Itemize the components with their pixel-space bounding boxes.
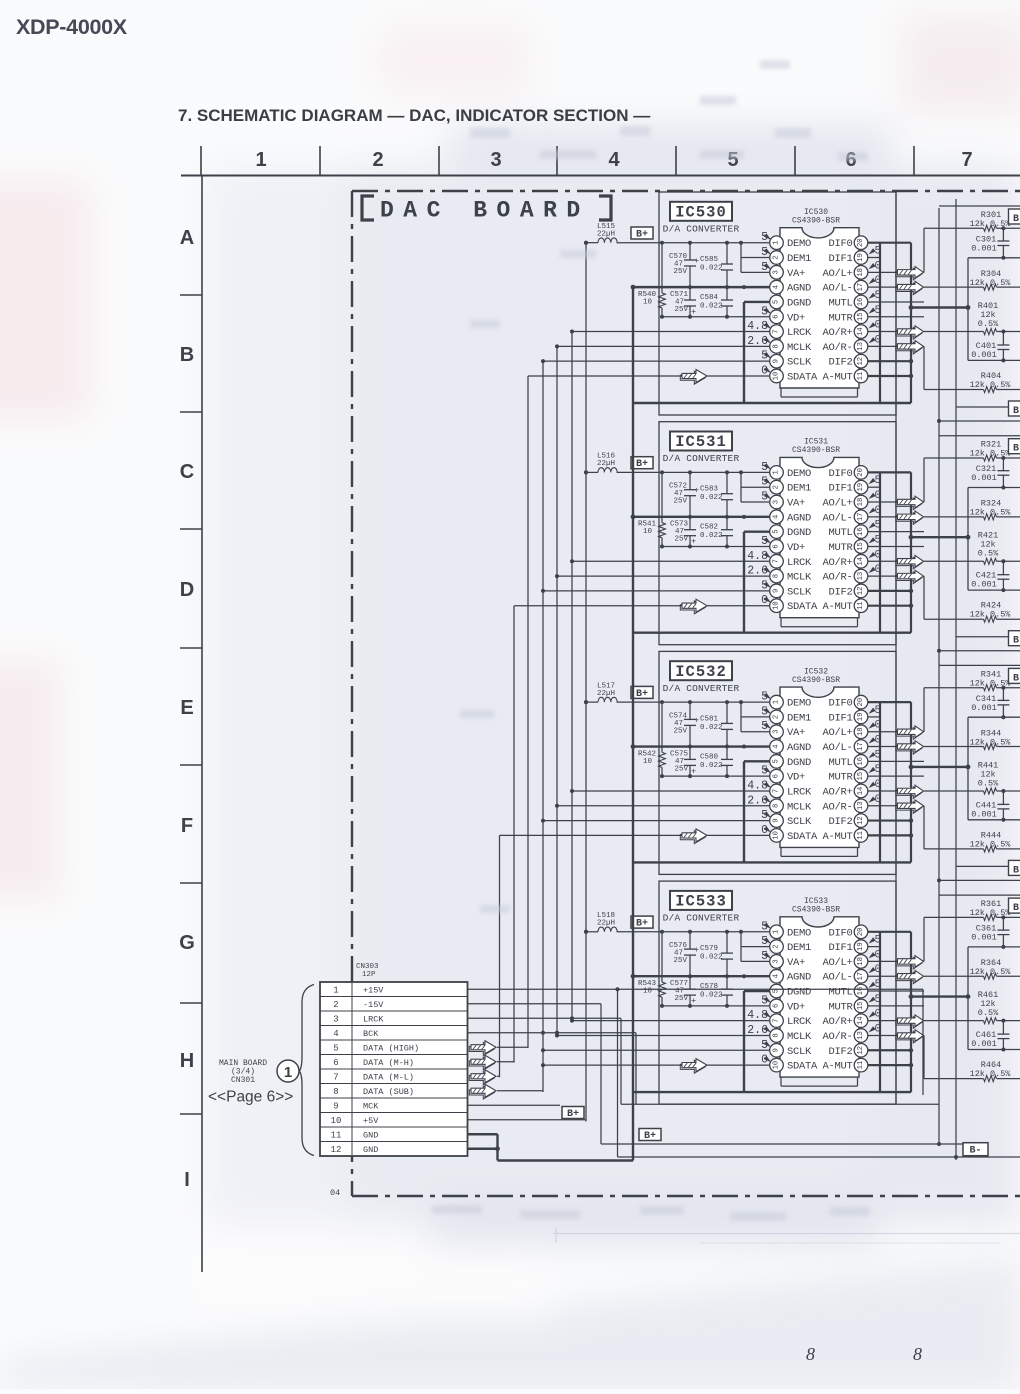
svg-text:AO/L+: AO/L+	[822, 498, 852, 510]
svg-text:MUTR: MUTR	[828, 1001, 853, 1013]
svg-text:AO/L-: AO/L-	[822, 742, 852, 754]
svg-text:8: 8	[773, 804, 781, 808]
svg-text:B+: B+	[636, 459, 648, 470]
svg-text:B: B	[1013, 636, 1019, 647]
svg-text:VD+: VD+	[787, 312, 805, 324]
svg-text:SCLK: SCLK	[787, 816, 812, 828]
svg-text:H: H	[180, 1050, 194, 1072]
svg-text:12P: 12P	[362, 971, 376, 979]
svg-text:<<Page 6>>: <<Page 6>>	[208, 1089, 293, 1106]
svg-text:0.022: 0.022	[700, 992, 723, 1000]
svg-text:SCLK: SCLK	[787, 1046, 812, 1058]
svg-text:6: 6	[773, 774, 781, 778]
svg-text:MCLK: MCLK	[787, 1031, 812, 1043]
svg-text:22µH: 22µH	[597, 920, 615, 928]
svg-text:6: 6	[773, 315, 781, 319]
svg-text:LRCK: LRCK	[787, 786, 812, 798]
svg-text:AO/R+: AO/R+	[822, 327, 852, 339]
svg-text:AGND: AGND	[787, 512, 811, 524]
svg-text:A-MUT: A-MUT	[822, 1061, 852, 1073]
svg-text:3: 3	[773, 730, 781, 734]
svg-text:5: 5	[333, 1043, 338, 1053]
svg-text:2: 2	[372, 149, 383, 171]
svg-text:4: 4	[333, 1029, 338, 1039]
svg-text:25V: 25V	[674, 306, 688, 314]
svg-text:14: 14	[857, 787, 865, 796]
svg-text:1: 1	[773, 470, 781, 474]
svg-text:10: 10	[773, 831, 781, 840]
svg-text:AO/L-: AO/L-	[822, 512, 852, 524]
svg-text:0.5%: 0.5%	[978, 778, 999, 788]
svg-text:7: 7	[773, 1018, 781, 1022]
svg-text:DIF1: DIF1	[828, 942, 852, 954]
svg-text:AO/L+: AO/L+	[822, 268, 852, 280]
svg-text:DIF1: DIF1	[828, 483, 852, 495]
svg-text:VA+: VA+	[787, 957, 805, 969]
svg-text:14: 14	[857, 327, 865, 336]
svg-text:CN303: CN303	[356, 963, 379, 971]
svg-text:AO/R-: AO/R-	[822, 801, 852, 813]
svg-text:14: 14	[857, 557, 865, 566]
svg-text:0.001: 0.001	[971, 703, 997, 713]
svg-text:0.022: 0.022	[700, 762, 723, 770]
svg-text:B+: B+	[636, 919, 648, 930]
svg-text:0.001: 0.001	[971, 1039, 997, 1049]
svg-text:DGND: DGND	[787, 757, 811, 769]
svg-text:B-: B-	[969, 1146, 981, 1157]
svg-text:D/A CONVERTER: D/A CONVERTER	[663, 913, 740, 924]
svg-text:25V: 25V	[674, 765, 688, 773]
svg-text:AO/R-: AO/R-	[822, 342, 852, 354]
svg-text:4: 4	[773, 974, 781, 978]
svg-text:C580: C580	[700, 753, 719, 761]
svg-text:MUTR: MUTR	[828, 312, 853, 324]
svg-text:3: 3	[773, 959, 781, 963]
svg-text:DATA (SUB): DATA (SUB)	[363, 1087, 414, 1097]
svg-text:1: 1	[773, 241, 781, 245]
svg-text:GND: GND	[363, 1145, 378, 1155]
svg-text:F: F	[181, 815, 193, 837]
svg-text:MUTL: MUTL	[828, 757, 852, 769]
svg-text:15: 15	[857, 1002, 865, 1011]
svg-text:1: 1	[773, 700, 781, 704]
svg-text:A-MUT: A-MUT	[822, 601, 852, 613]
svg-text:12: 12	[857, 357, 865, 366]
svg-text:DEMO: DEMO	[787, 468, 811, 480]
svg-text:3: 3	[333, 1014, 338, 1024]
svg-text:2: 2	[773, 944, 781, 948]
svg-text:+: +	[691, 307, 696, 317]
svg-text:DIF1: DIF1	[828, 253, 852, 265]
svg-text:15: 15	[857, 772, 865, 781]
svg-text:3: 3	[773, 270, 781, 274]
svg-text:15: 15	[857, 312, 865, 321]
svg-text:14: 14	[857, 1016, 865, 1025]
svg-text:9: 9	[773, 359, 781, 363]
svg-text:25V: 25V	[673, 727, 687, 735]
svg-text:DEM1: DEM1	[787, 942, 811, 954]
svg-text:DATA (M-H): DATA (M-H)	[363, 1058, 414, 1068]
svg-text:2: 2	[333, 1000, 338, 1010]
svg-text:17: 17	[857, 283, 865, 292]
svg-text:8: 8	[913, 1344, 922, 1364]
svg-text:CS4390-BSR: CS4390-BSR	[792, 446, 840, 455]
svg-text:25V: 25V	[673, 498, 687, 506]
svg-text:10: 10	[643, 528, 653, 536]
svg-text:11: 11	[331, 1130, 342, 1140]
svg-text:9: 9	[773, 1048, 781, 1052]
svg-text:GND: GND	[363, 1130, 378, 1140]
svg-text:0.022: 0.022	[700, 303, 723, 311]
svg-text:19: 19	[857, 483, 865, 492]
svg-text:13: 13	[857, 572, 865, 581]
svg-text:DEM1: DEM1	[787, 483, 811, 495]
svg-text:LRCK: LRCK	[787, 1016, 812, 1028]
svg-text:AGND: AGND	[787, 972, 811, 984]
svg-text:10: 10	[331, 1116, 342, 1126]
svg-text:7: 7	[773, 559, 781, 563]
svg-text:MCK: MCK	[363, 1101, 379, 1111]
svg-text:DIF2: DIF2	[828, 816, 852, 828]
svg-text:C582: C582	[700, 524, 718, 532]
svg-text:18: 18	[857, 957, 865, 966]
svg-text:1: 1	[333, 985, 338, 995]
svg-text:17: 17	[857, 972, 865, 981]
svg-text:MUTR: MUTR	[828, 542, 853, 554]
svg-text:MCLK: MCLK	[787, 342, 812, 354]
svg-text:SCLK: SCLK	[787, 357, 812, 369]
svg-text:17: 17	[857, 513, 865, 522]
svg-text:18: 18	[857, 498, 865, 507]
svg-text:VA+: VA+	[787, 268, 805, 280]
svg-text:19: 19	[857, 942, 865, 951]
svg-text:4: 4	[773, 285, 781, 289]
svg-text:DIF0: DIF0	[828, 927, 852, 939]
svg-text:16: 16	[857, 987, 865, 996]
svg-text:C584: C584	[700, 294, 719, 302]
svg-text:18: 18	[857, 268, 865, 277]
svg-text:19: 19	[857, 253, 865, 262]
svg-text:DEMO: DEMO	[787, 927, 811, 939]
svg-text:+: +	[694, 256, 699, 266]
svg-text:SDATA: SDATA	[787, 371, 818, 383]
svg-text:DIF2: DIF2	[828, 1046, 852, 1058]
svg-text:SDATA: SDATA	[787, 601, 818, 613]
svg-text:B: B	[1013, 673, 1019, 684]
svg-text:0.022: 0.022	[700, 532, 723, 540]
svg-text:MUTL: MUTL	[828, 297, 852, 309]
svg-text:BCK: BCK	[363, 1029, 379, 1039]
svg-text:20: 20	[857, 238, 865, 247]
svg-text:4: 4	[773, 744, 781, 748]
svg-text:25V: 25V	[674, 995, 688, 1003]
svg-text:6: 6	[773, 1004, 781, 1008]
svg-text:11: 11	[857, 601, 865, 610]
svg-text:B+: B+	[644, 1131, 656, 1142]
svg-text:IC530: IC530	[675, 204, 727, 222]
svg-text:7: 7	[333, 1072, 338, 1082]
svg-text:DEMO: DEMO	[787, 238, 811, 250]
svg-text:DEM1: DEM1	[787, 712, 811, 724]
svg-text:SDATA: SDATA	[787, 1061, 818, 1073]
svg-text:25V: 25V	[674, 536, 688, 544]
svg-text:C585: C585	[700, 256, 719, 264]
svg-text:7: 7	[961, 149, 972, 171]
svg-text:XDP-4000X: XDP-4000X	[16, 15, 128, 39]
svg-text:4: 4	[773, 515, 781, 519]
svg-text:22µH: 22µH	[597, 460, 615, 468]
svg-text:0.001: 0.001	[971, 473, 997, 483]
svg-text:12: 12	[857, 587, 865, 596]
svg-text:DGND: DGND	[787, 527, 811, 539]
svg-text:2: 2	[773, 715, 781, 719]
svg-text:2: 2	[773, 255, 781, 259]
svg-text:+5V: +5V	[363, 1116, 379, 1126]
svg-text:7. SCHEMATIC DIAGRAM — DAC, IN: 7. SCHEMATIC DIAGRAM — DAC, INDICATOR SE…	[178, 106, 650, 125]
svg-text:8: 8	[773, 574, 781, 578]
svg-text:0.001: 0.001	[971, 244, 997, 254]
svg-text:0.022: 0.022	[700, 494, 723, 502]
svg-text:10: 10	[773, 1061, 781, 1070]
svg-text:12: 12	[331, 1145, 342, 1155]
svg-text:20: 20	[857, 698, 865, 707]
svg-text:B+: B+	[636, 689, 648, 700]
svg-text:7: 7	[773, 789, 781, 793]
svg-text:AGND: AGND	[787, 283, 811, 295]
svg-text:11: 11	[857, 831, 865, 840]
svg-text:20: 20	[857, 468, 865, 477]
svg-text:C579: C579	[700, 945, 718, 953]
svg-text:9: 9	[773, 589, 781, 593]
svg-text:MCLK: MCLK	[787, 801, 812, 813]
svg-text:CN301: CN301	[231, 1076, 255, 1085]
svg-text:0.022: 0.022	[700, 265, 723, 273]
svg-text:B: B	[1013, 406, 1019, 417]
svg-text:11: 11	[857, 1061, 865, 1070]
svg-text:8: 8	[333, 1087, 338, 1097]
svg-text:DAC BOARD: DAC BOARD	[380, 198, 590, 224]
svg-text:10: 10	[773, 601, 781, 610]
svg-text:0.001: 0.001	[971, 933, 997, 943]
svg-text:E: E	[180, 697, 193, 719]
svg-text:D: D	[180, 579, 194, 601]
svg-text:G: G	[179, 932, 195, 954]
svg-text:AO/R+: AO/R+	[822, 786, 852, 798]
svg-text:DIF0: DIF0	[828, 238, 852, 250]
svg-text:CS4390-BSR: CS4390-BSR	[792, 217, 840, 226]
svg-text:22µH: 22µH	[597, 231, 615, 239]
svg-text:DEM1: DEM1	[787, 253, 811, 265]
svg-text:B: B	[1013, 214, 1019, 225]
svg-text:+: +	[691, 766, 696, 776]
svg-text:13: 13	[857, 1031, 865, 1040]
svg-text:A-MUT: A-MUT	[822, 371, 852, 383]
svg-text:AO/R+: AO/R+	[822, 1016, 852, 1028]
svg-text:DIF0: DIF0	[828, 468, 852, 480]
svg-text:AGND: AGND	[787, 742, 811, 754]
svg-text:B: B	[1013, 444, 1019, 455]
svg-text:AO/L+: AO/L+	[822, 957, 852, 969]
svg-text:7: 7	[773, 329, 781, 333]
svg-text:DATA (HIGH): DATA (HIGH)	[363, 1043, 419, 1053]
svg-text:B+: B+	[636, 230, 648, 241]
svg-text:2: 2	[773, 485, 781, 489]
svg-text:0.001: 0.001	[971, 350, 997, 360]
svg-text:DIF1: DIF1	[828, 712, 852, 724]
svg-text:LRCK: LRCK	[363, 1014, 384, 1024]
svg-text:C578: C578	[700, 983, 718, 991]
svg-text:DATA (M-L): DATA (M-L)	[363, 1072, 414, 1082]
svg-text:DIF0: DIF0	[828, 698, 852, 710]
svg-text:1: 1	[284, 1064, 292, 1081]
svg-text:5: 5	[773, 529, 781, 533]
svg-text:AO/R+: AO/R+	[822, 557, 852, 569]
svg-text:10: 10	[643, 758, 653, 766]
svg-text:20: 20	[857, 927, 865, 936]
svg-text:A-MUT: A-MUT	[822, 831, 852, 843]
svg-text:AO/L-: AO/L-	[822, 972, 852, 984]
svg-text:3: 3	[773, 500, 781, 504]
svg-text:SCLK: SCLK	[787, 586, 812, 598]
svg-text:17: 17	[857, 742, 865, 751]
svg-text:16: 16	[857, 527, 865, 536]
svg-text:MUTL: MUTL	[828, 987, 852, 999]
svg-text:1: 1	[255, 149, 266, 171]
svg-text:CS4390-BSR: CS4390-BSR	[792, 676, 840, 685]
svg-text:1: 1	[773, 930, 781, 934]
svg-text:B: B	[180, 344, 194, 366]
svg-text:18: 18	[857, 727, 865, 736]
svg-text:+15V: +15V	[363, 985, 384, 995]
svg-text:I: I	[184, 1169, 190, 1191]
svg-text:3: 3	[490, 149, 501, 171]
svg-text:CS4390-BSR: CS4390-BSR	[792, 906, 840, 915]
svg-text:D/A CONVERTER: D/A CONVERTER	[663, 224, 740, 235]
svg-text:8: 8	[806, 1344, 815, 1364]
svg-text:B: B	[1013, 865, 1019, 876]
svg-text:6: 6	[333, 1058, 338, 1068]
svg-text:C: C	[180, 461, 194, 483]
svg-text:19: 19	[857, 713, 865, 722]
svg-text:B+: B+	[567, 1109, 579, 1120]
svg-text:25V: 25V	[673, 268, 687, 276]
svg-text:SDATA: SDATA	[787, 831, 818, 843]
svg-text:5: 5	[773, 300, 781, 304]
svg-text:A: A	[180, 227, 194, 249]
svg-text:16: 16	[857, 298, 865, 307]
svg-text:MUTR: MUTR	[828, 772, 853, 784]
svg-text:AO/R-: AO/R-	[822, 1031, 852, 1043]
svg-text:DIF2: DIF2	[828, 586, 852, 598]
svg-text:0.5%: 0.5%	[978, 1008, 999, 1018]
svg-text:5: 5	[773, 759, 781, 763]
svg-text:10: 10	[643, 299, 653, 307]
svg-text:+: +	[694, 715, 699, 725]
svg-text:VD+: VD+	[787, 542, 805, 554]
svg-text:DEMO: DEMO	[787, 698, 811, 710]
svg-text:9: 9	[773, 818, 781, 822]
svg-text:6: 6	[773, 544, 781, 548]
svg-text:VD+: VD+	[787, 772, 805, 784]
svg-text:13: 13	[857, 342, 865, 351]
svg-text:16: 16	[857, 757, 865, 766]
svg-text:C583: C583	[700, 486, 719, 494]
svg-text:12: 12	[857, 816, 865, 825]
svg-text:8: 8	[773, 344, 781, 348]
svg-text:0.001: 0.001	[971, 580, 997, 590]
svg-text:LRCK: LRCK	[787, 557, 812, 569]
svg-text:12: 12	[857, 1046, 865, 1055]
svg-text:-15V: -15V	[363, 1000, 384, 1010]
svg-text:AO/L+: AO/L+	[822, 727, 852, 739]
svg-text:+: +	[694, 486, 699, 496]
svg-text:+: +	[694, 945, 699, 955]
svg-text:LRCK: LRCK	[787, 327, 812, 339]
svg-text:+: +	[691, 996, 696, 1006]
svg-text:0.001: 0.001	[971, 809, 997, 819]
svg-text:+: +	[691, 537, 696, 547]
svg-text:B: B	[1013, 903, 1019, 914]
svg-text:IC533: IC533	[675, 893, 727, 911]
svg-text:VA+: VA+	[787, 498, 805, 510]
svg-text:22µH: 22µH	[597, 690, 615, 698]
svg-text:04: 04	[330, 1188, 340, 1198]
svg-text:AO/R-: AO/R-	[822, 572, 852, 584]
svg-text:MUTL: MUTL	[828, 527, 852, 539]
svg-text:AO/L-: AO/L-	[822, 283, 852, 295]
svg-text:C581: C581	[700, 715, 719, 723]
svg-text:0.022: 0.022	[700, 954, 723, 962]
svg-text:0.5%: 0.5%	[978, 549, 999, 559]
svg-text:9: 9	[333, 1101, 338, 1111]
svg-text:15: 15	[857, 542, 865, 551]
svg-text:D/A CONVERTER: D/A CONVERTER	[663, 453, 740, 464]
svg-text:DIF2: DIF2	[828, 357, 852, 369]
svg-text:0.022: 0.022	[700, 724, 723, 732]
svg-text:11: 11	[857, 372, 865, 381]
svg-text:0.5%: 0.5%	[978, 319, 999, 329]
svg-text:VD+: VD+	[787, 1001, 805, 1013]
svg-text:25V: 25V	[673, 957, 687, 965]
svg-text:IC532: IC532	[675, 663, 727, 681]
svg-text:MCLK: MCLK	[787, 572, 812, 584]
svg-text:DGND: DGND	[787, 297, 811, 309]
svg-text:4: 4	[608, 149, 620, 171]
svg-text:IC531: IC531	[675, 433, 727, 451]
svg-text:VA+: VA+	[787, 727, 805, 739]
svg-text:D/A CONVERTER: D/A CONVERTER	[663, 683, 740, 694]
svg-text:DGND: DGND	[787, 987, 811, 999]
svg-text:13: 13	[857, 801, 865, 810]
svg-text:10: 10	[773, 372, 781, 381]
svg-text:8: 8	[773, 1033, 781, 1037]
